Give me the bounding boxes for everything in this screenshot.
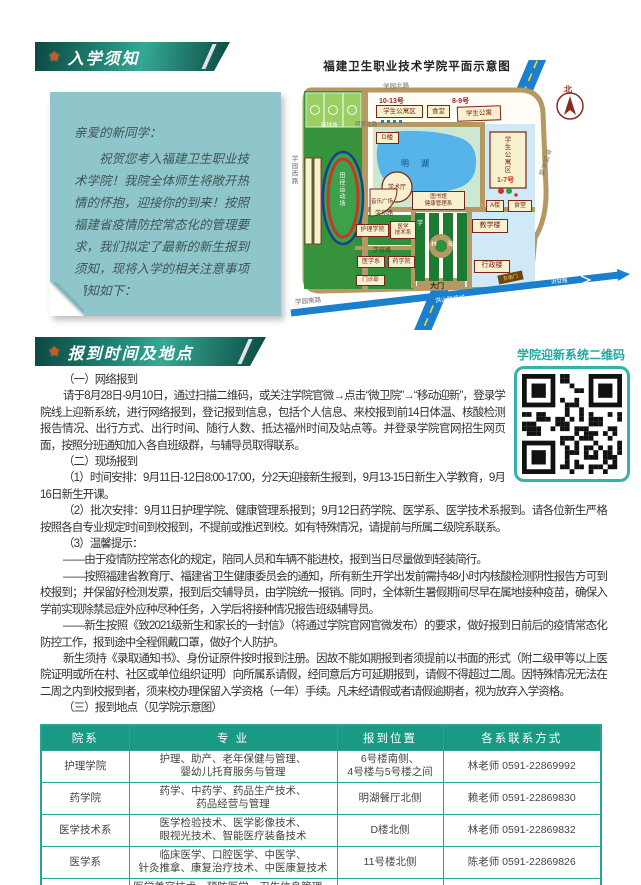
column-header: 各系联系方式	[443, 725, 601, 751]
road-label-ganhong: 甘洪路	[552, 172, 580, 220]
contact-cell: 林老师 0591-22869992	[443, 750, 601, 782]
table-row: 药学院药学、中药学、药品生产技术、 药品经营与管理明湖餐厅北侧赖老师 0591-…	[41, 782, 601, 814]
majors-cell: 医学检验技术、医学影像技术、 眼视光技术、智能医疗装备技术	[129, 814, 337, 846]
department-cell: 药学院	[41, 782, 129, 814]
admin-building-badge: 行政楼	[474, 260, 510, 273]
table-row: 健康管理系医学美容技术、预防医学、卫生信息管理、 健康管理、医学营养、体育保健与…	[41, 878, 601, 885]
table-row: 护理学院护理、助产、老年保健与管理、 婴幼儿托育服务与管理6号楼南侧、 4号楼与…	[41, 750, 601, 782]
main-gate-label: 大门	[430, 281, 444, 291]
medtech-line2: 技术系	[395, 230, 412, 236]
map-labels: 北 学园北路 学园西路 学园南路 学园东路 明湖北路 学苑路 学府路 甘洪路 洪…	[285, 60, 641, 330]
d-building-badge: D楼	[376, 132, 399, 144]
medical-dept-badge: 医学系	[357, 256, 385, 268]
notice-paragraph: ——由于疫情防控常态化的规定，陪同人员和车辆不能进校，报到当日尽量做到轻装简行。	[40, 552, 607, 568]
star-icon: ★	[48, 343, 61, 360]
banner-title: 报到时间及地点	[68, 340, 194, 364]
section-banner-report-time: ★ 报到时间及地点	[35, 337, 266, 366]
majors-cell: 护理、助产、老年保健与管理、 婴幼儿托育服务与管理	[129, 750, 337, 782]
a-building-badge: A楼	[486, 200, 504, 212]
column-header: 院系	[41, 725, 129, 751]
notice-body: （一）网络报到请于8月28日-9月10日，通过扫描二维码，或关注学院官微→点击“…	[40, 372, 607, 885]
health-dept-label: 健康管理系	[425, 201, 453, 207]
department-cell: 健康管理系	[41, 878, 129, 885]
lecture-hall-label: 学术厅	[382, 182, 412, 191]
majors-cell: 医学美容技术、预防医学、卫生信息管理、 健康管理、医学营养、体育保健与康复	[129, 878, 337, 885]
note-greeting: 亲爱的新同学：	[74, 122, 259, 144]
notice-paragraph: （3）温馨提示：	[40, 536, 607, 552]
star-icon: ★	[48, 48, 61, 65]
music-plaza-label: 音乐广场	[371, 197, 393, 205]
campus-map: 福建卫生职业技术学院平面示意图	[285, 56, 641, 330]
location-cell: D楼北侧	[337, 814, 443, 846]
notice-paragraph: （2）批次安排：9月11日护理学院、健康管理系报到；9月12日药学院、医学系、医…	[40, 503, 607, 536]
road-label-xueyuan: 学苑路	[375, 208, 393, 217]
basketball-label: 篮球场	[321, 121, 338, 129]
canteen-north-badge: 食堂	[427, 105, 450, 118]
enrollment-notice-page: ★ 入学须知 亲爱的新同学： 祝贺您考入福建卫生职业技术学院！我院全体师生将敞开…	[0, 0, 641, 885]
boulevard-char-1: 学	[417, 218, 423, 227]
notice-paragraph: 新生须持《录取通知书》、身份证原件按时报到注册。因故不能如期报到者须提前以书面的…	[40, 651, 607, 700]
notice-paragraph: （1）时间安排：9月11日-12日8:00-17:00，分2天迎接新生报到，9月…	[40, 470, 607, 503]
road-label-lake-north: 明湖北路	[355, 120, 377, 128]
canteen-east-badge: 食堂	[508, 200, 532, 212]
banner-title: 入学须知	[68, 45, 140, 69]
contact-cell: 陈老师 0591-22869826	[443, 846, 601, 878]
department-cell: 医学系	[41, 846, 129, 878]
dorm-nw-badge: 学生公寓区	[376, 105, 423, 118]
section-banner-enrollment-notice: ★ 入学须知	[35, 42, 230, 71]
department-cell: 护理学院	[41, 750, 129, 782]
teaching-building-badge: 教学楼	[472, 219, 508, 233]
contact-cell: 吴老师 0591-22068711	[443, 878, 601, 885]
road-label-north: 学园北路	[383, 80, 409, 91]
lake-label: 明湖	[401, 158, 441, 169]
boulevard-char-3: 海	[447, 239, 453, 248]
dorm-east-label: 学生公寓区	[501, 136, 511, 180]
library-badge: 图书馆 健康管理系	[412, 191, 465, 210]
notice-paragraph: ——新生按照《致2021级新生和家长的一封信》（将通过学院官网官微发布）的要求，…	[40, 618, 607, 651]
clinic-badge: 门诊部	[356, 275, 385, 286]
medtech-dept-badge: 医学 技术系	[390, 221, 416, 239]
pharmacy-college-badge: 药学院	[388, 256, 415, 268]
location-cell: 6号楼南侧、 4号楼与5号楼之间	[337, 750, 443, 782]
majors-cell: 药学、中药学、药品生产技术、 药品经营与管理	[129, 782, 337, 814]
boulevard-char-2: 林	[431, 239, 437, 248]
dorm-n-badge: 学生公寓	[457, 105, 501, 122]
table-row: 医学技术系医学检验技术、医学影像技术、 眼视光技术、智能医疗装备技术D楼北侧林老…	[41, 814, 601, 846]
banner-slash-decoration	[237, 339, 252, 364]
track-label: 田径运动场	[337, 172, 346, 230]
location-cell: 11号楼北侧	[337, 846, 443, 878]
department-cell: 医学技术系	[41, 814, 129, 846]
dorm-east-number: 1-7号	[497, 175, 514, 185]
qr-flow-spacer	[505, 372, 607, 472]
welcome-note: 亲爱的新同学： 祝贺您考入福建卫生职业技术学院！我院全体师生将敞开热情的怀抱，迎…	[50, 92, 281, 316]
contact-cell: 赖老师 0591-22869830	[443, 782, 601, 814]
qr-caption: 学院迎新系统二维码	[504, 346, 638, 363]
road-label-link-arrow: 洪甘路	[551, 276, 568, 286]
banner-slash-decoration	[201, 44, 216, 69]
road-label-east: 学园东路	[528, 148, 553, 200]
dorm-n-number: 8-9号	[452, 96, 469, 106]
contact-cell: 林老师 0591-22869832	[443, 814, 601, 846]
majors-cell: 临床医学、口腔医学、中医学、 针灸推拿、康复治疗技术、中医康复技术	[129, 846, 337, 878]
note-body: 祝贺您考入福建卫生职业技术学院！我院全体师生将敞开热情的怀抱，迎接你的到来！按照…	[74, 148, 259, 302]
location-cell: 明湖餐厅北侧	[337, 782, 443, 814]
location-cell: 9号楼西侧	[337, 878, 443, 885]
column-header: 报到位置	[337, 725, 443, 751]
table-body: 护理学院护理、助产、老年保健与管理、 婴幼儿托育服务与管理6号楼南侧、 4号楼与…	[41, 750, 601, 885]
report-location-table: 院系专 业报到位置各系联系方式 护理学院护理、助产、老年保健与管理、 婴幼儿托育…	[40, 724, 602, 885]
table-row: 医学系临床医学、口腔医学、中医学、 针灸推拿、康复治疗技术、中医康复技术11号楼…	[41, 846, 601, 878]
nursing-college-badge: 护理学院	[356, 224, 389, 237]
road-label-xuefu: 学府路	[373, 245, 391, 254]
road-label-south: 学园南路	[295, 294, 322, 306]
road-label-west: 学园西路	[288, 155, 298, 207]
note-fold-corner	[50, 282, 84, 316]
north-label: 北	[564, 84, 572, 95]
notice-paragraph: ——按照福建省教育厅、福建省卫生健康委员会的通知，所有新生开学出发前需持48小时…	[40, 569, 607, 618]
road-label-south-link: 洪山联络线	[435, 292, 466, 304]
table-header-row: 院系专 业报到位置各系联系方式	[41, 725, 601, 751]
column-header: 专 业	[129, 725, 337, 751]
notice-paragraph: （三）报到地点（见学院示意图）	[40, 700, 607, 716]
